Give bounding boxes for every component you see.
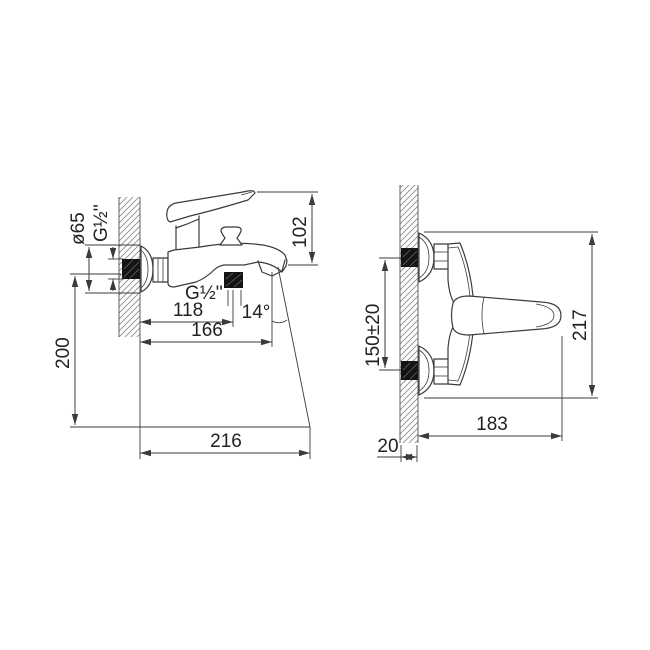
top-faucet <box>419 233 561 395</box>
flange <box>141 246 153 292</box>
dim-o65-label: ø65 <box>68 212 89 245</box>
dim-217-label: 217 <box>570 309 591 341</box>
dim-216-label: 216 <box>210 431 242 452</box>
dim-118-label: 118 <box>173 300 203 321</box>
side-view: ø65 G½'' 102 200 G½'' 118 <box>53 191 318 459</box>
top-view: 150±20 217 183 20 <box>363 185 598 462</box>
technical-drawing-page: ø65 G½'' 102 200 G½'' 118 <box>0 0 650 650</box>
handle-outline <box>452 296 562 335</box>
wall-hatch <box>400 185 418 443</box>
body-lower-slope-inner <box>448 332 470 381</box>
dim-183-label: 183 <box>476 414 508 435</box>
body-upper-slope-inner <box>448 247 470 296</box>
side-dimensions: ø65 G½'' 102 200 G½'' 118 <box>53 192 318 459</box>
dim-102-label: 102 <box>290 216 311 248</box>
body-left-lower <box>448 327 453 359</box>
angle-arc <box>272 320 287 323</box>
top-dimensions: 150±20 217 183 20 <box>363 232 598 462</box>
side-faucet <box>141 191 287 292</box>
upper-flange <box>419 233 434 282</box>
upper-nut <box>434 244 448 269</box>
connection-nut <box>153 258 168 282</box>
body-left-upper <box>448 269 453 301</box>
top-wall-section <box>400 185 418 443</box>
faucet-dimension-drawing: ø65 G½'' 102 200 G½'' 118 <box>0 0 650 650</box>
dim-200-label: 200 <box>53 337 74 369</box>
dim-14deg-label: 14° <box>242 302 271 323</box>
dim-150-20-label: 150±20 <box>363 304 384 367</box>
dim-g12-wall-label: G½'' <box>91 204 112 242</box>
side-wall-section <box>119 197 140 337</box>
lower-nut <box>434 359 448 384</box>
stream-line <box>278 267 310 427</box>
lever-handle <box>167 191 255 222</box>
neck-cap-line <box>176 219 199 228</box>
dim-20-label: 20 <box>377 436 398 457</box>
lower-flange <box>419 346 434 395</box>
diverter-knob <box>220 227 242 245</box>
dim-166-label: 166 <box>191 320 223 341</box>
